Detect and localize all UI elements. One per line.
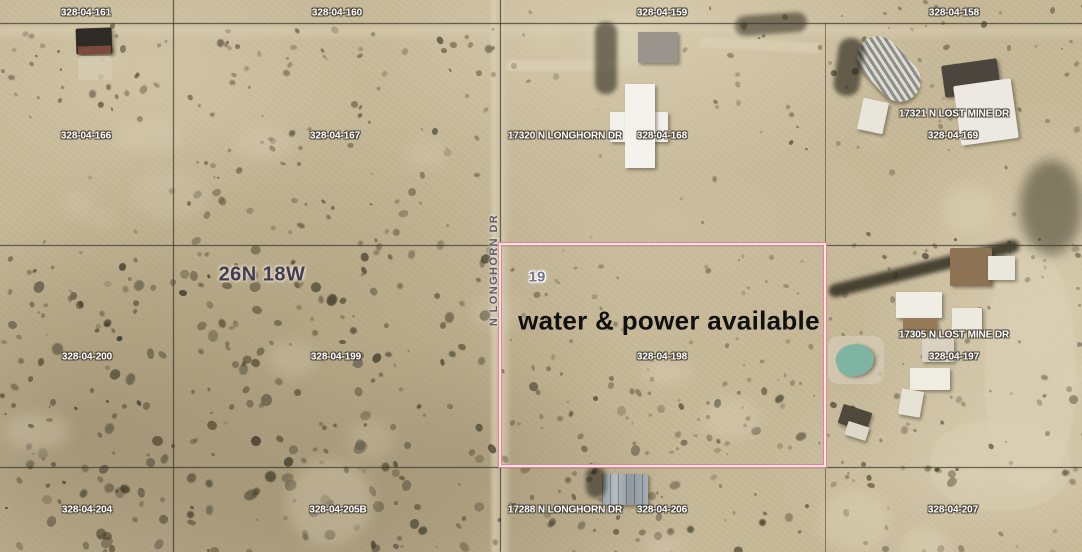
parcel-label: 328-04-198 (637, 352, 687, 363)
parcel-label: 328-04-197 (929, 352, 979, 363)
parcel-label: 17321 N LOST MINE DR (899, 109, 1009, 120)
labels-layer: 26N 18W 19 water & power available N LON… (0, 0, 1082, 552)
parcel-label: 328-04-204 (62, 505, 112, 516)
parcel-label: 328-04-169 (928, 131, 978, 142)
parcel-label: 328-04-200 (62, 352, 112, 363)
township-range-label: 26N 18W (219, 264, 306, 287)
parcel-label: 328-04-199 (311, 352, 361, 363)
map-canvas[interactable]: 26N 18W 19 water & power available N LON… (0, 0, 1082, 552)
section-number-label: 19 (529, 269, 546, 286)
parcel-label: 328-04-206 (637, 505, 687, 516)
parcel-label: 17288 N LONGHORN DR (508, 505, 622, 516)
road-label-n-longhorn-dr: N LONGHORN DR (488, 214, 500, 326)
parcel-label: 328-04-166 (61, 131, 111, 142)
parcel-label: 328-04-161 (61, 8, 111, 19)
parcel-label: 328-04-168 (637, 131, 687, 142)
parcel-label: 328-04-160 (312, 8, 362, 19)
parcel-label: 328-04-207 (928, 505, 978, 516)
parcel-label: 328-04-159 (637, 8, 687, 19)
parcel-label: 17320 N LONGHORN DR (508, 131, 622, 142)
parcel-label: 328-04-158 (929, 8, 979, 19)
parcel-label: 17305 N LOST MINE DR (899, 330, 1009, 341)
annotation-text: water & power available (518, 306, 820, 337)
parcel-label: 328-04-205B (309, 505, 366, 516)
parcel-label: 328-04-167 (310, 131, 360, 142)
